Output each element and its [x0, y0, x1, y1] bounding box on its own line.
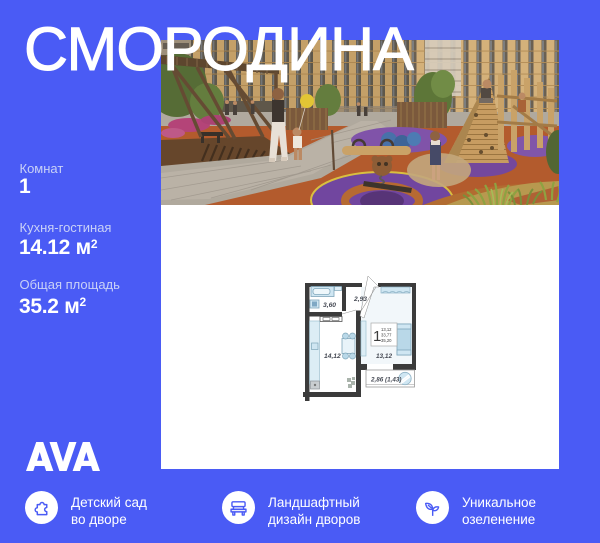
- svg-text:13,12: 13,12: [376, 353, 392, 360]
- svg-text:35,20: 35,20: [381, 338, 392, 343]
- svg-text:3,60: 3,60: [323, 302, 336, 309]
- svg-text:33,77: 33,77: [381, 333, 392, 338]
- svg-text:2,86 (1,43): 2,86 (1,43): [370, 377, 401, 384]
- svg-text:2,93: 2,93: [353, 296, 367, 303]
- svg-text:14,12: 14,12: [324, 353, 341, 360]
- svg-text:13,12: 13,12: [381, 327, 392, 332]
